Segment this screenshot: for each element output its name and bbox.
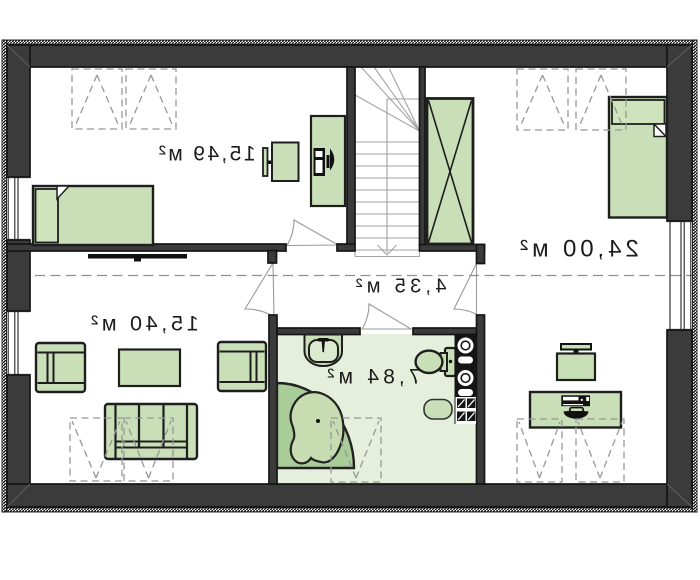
svg-text:4,35 м²: 4,35 м² xyxy=(352,276,447,298)
svg-text:15,40 м²: 15,40 м² xyxy=(87,312,198,336)
svg-text:7,84 м²: 7,84 м² xyxy=(323,366,421,389)
svg-text:24,00 м²: 24,00 м² xyxy=(516,236,638,263)
svg-text:15,49 м²: 15,49 м² xyxy=(156,143,255,166)
